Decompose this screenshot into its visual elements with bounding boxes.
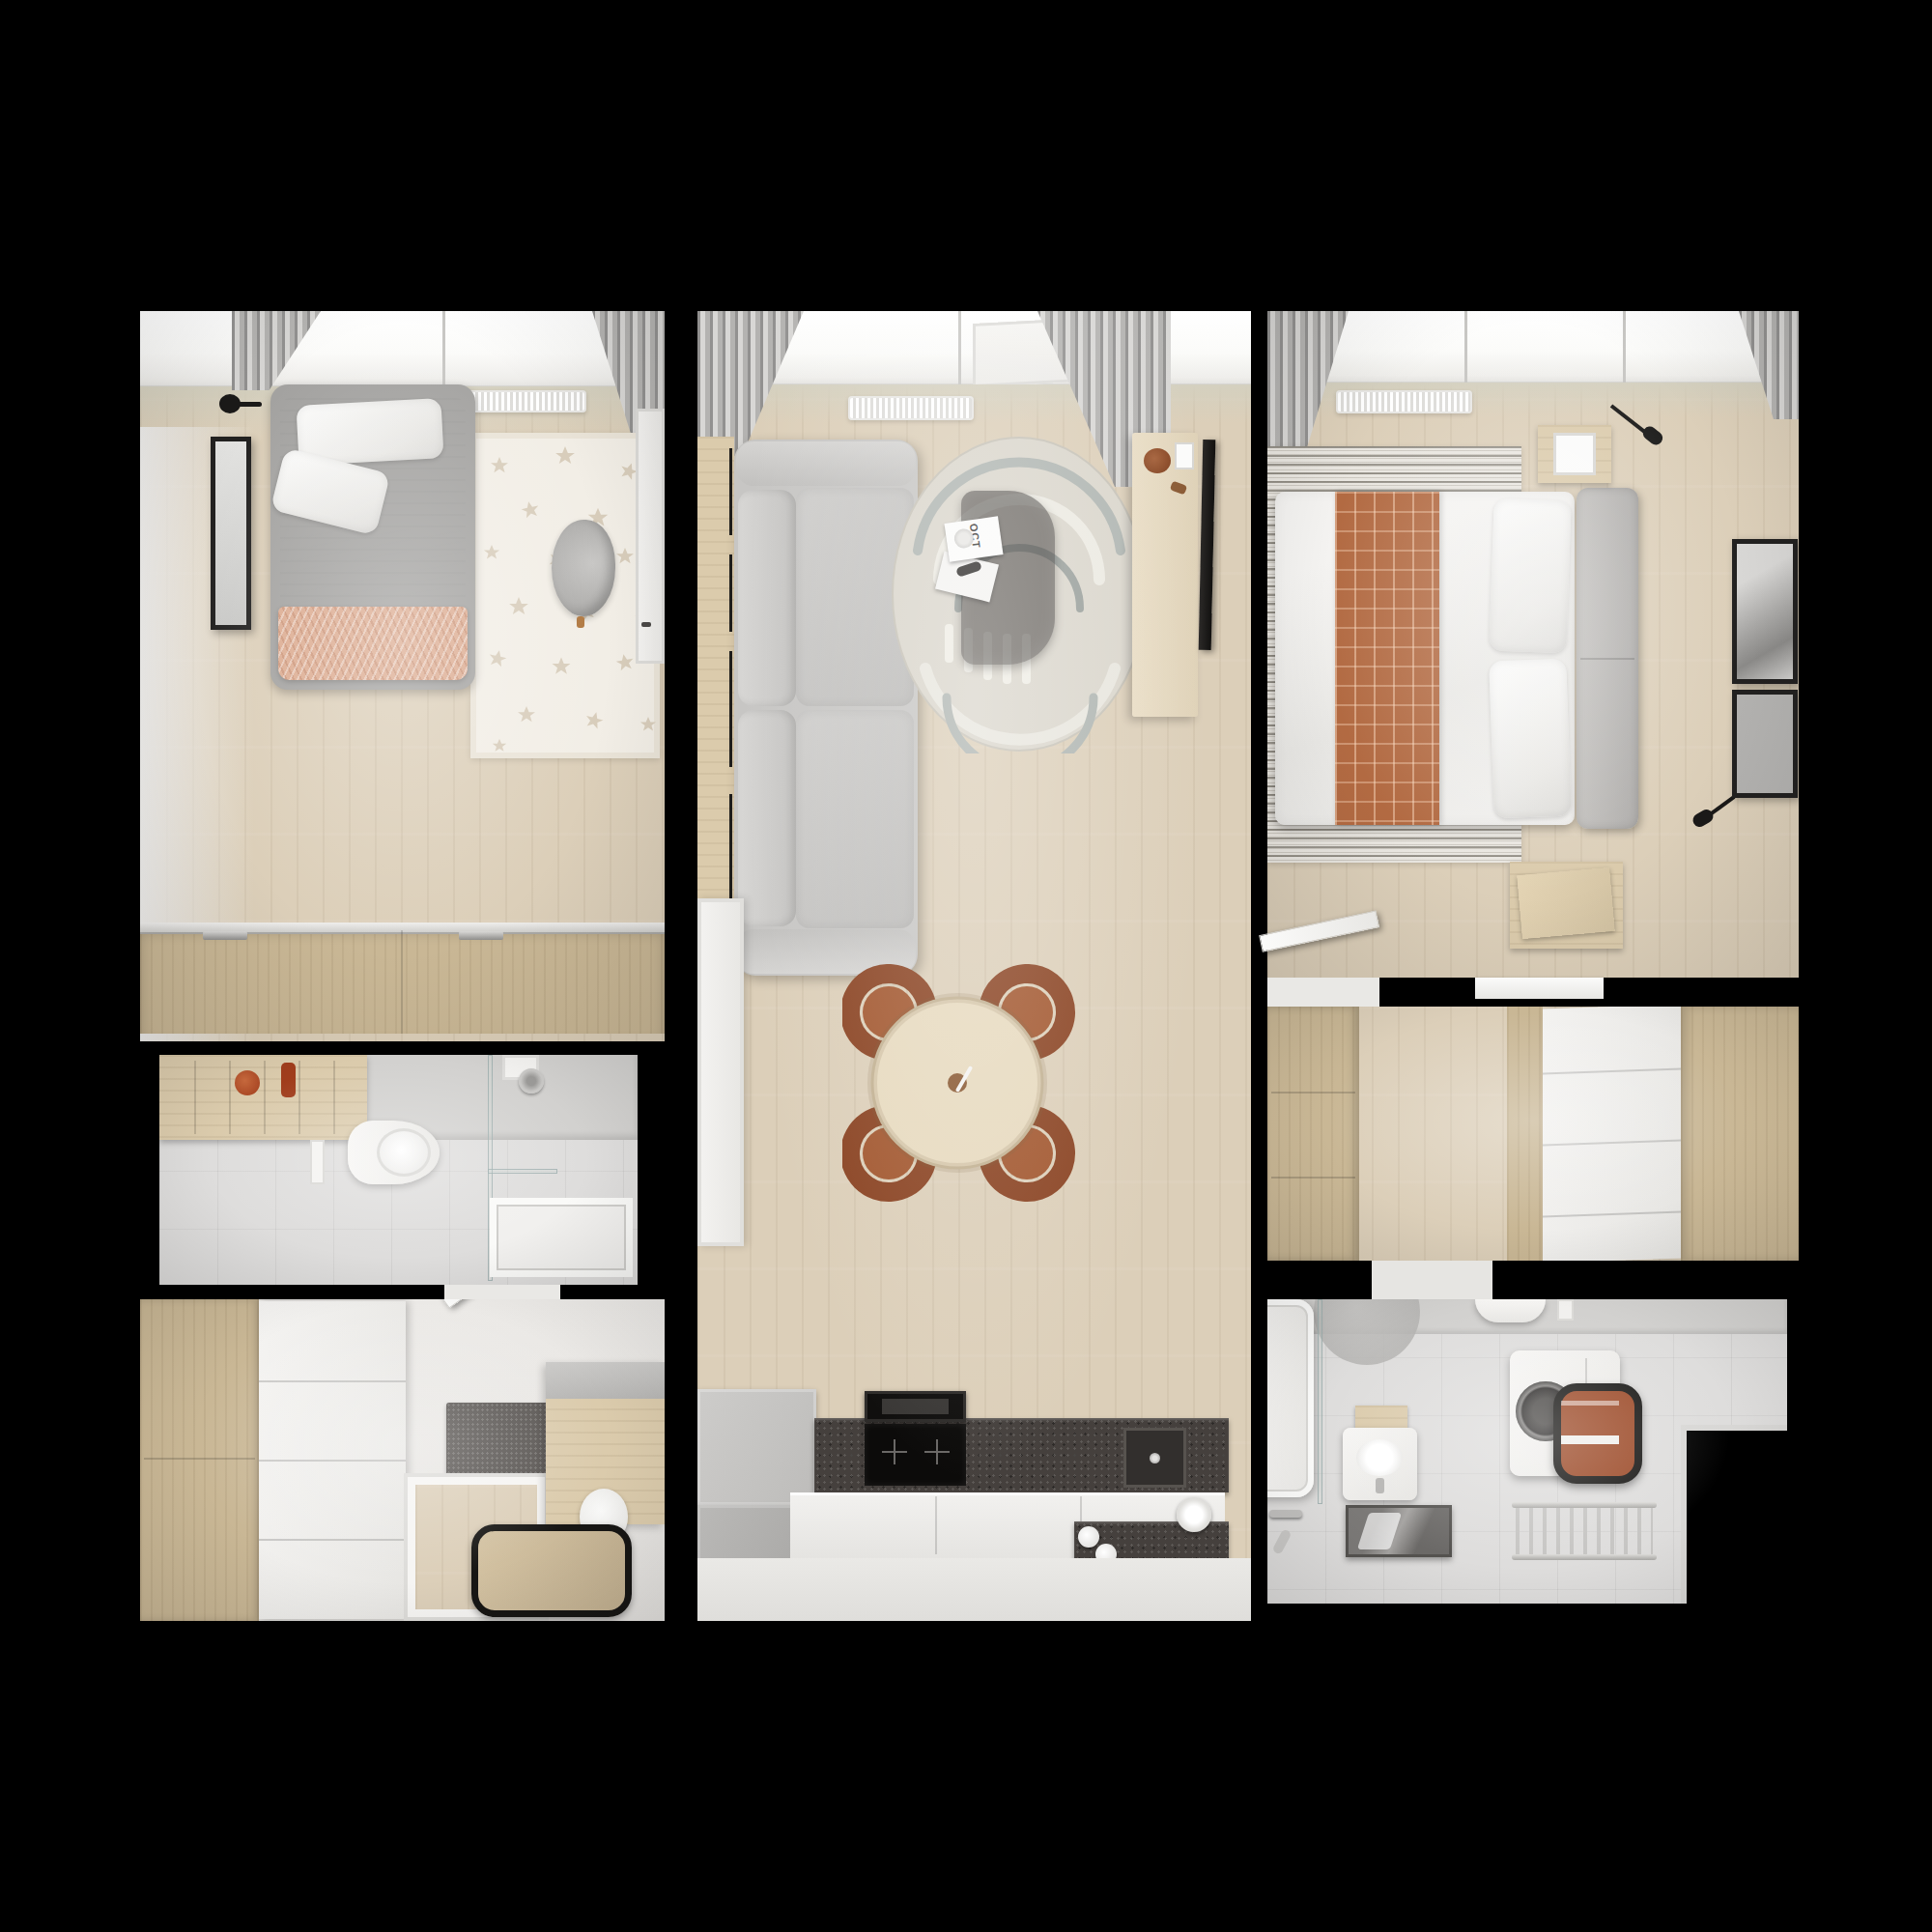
hob-cross-1v bbox=[894, 1439, 895, 1464]
shelf-divider bbox=[333, 1061, 335, 1134]
master-radiator bbox=[1336, 390, 1472, 413]
front-seam bbox=[935, 1496, 937, 1554]
kids-armchair bbox=[552, 520, 615, 616]
room-living-kitchen: OCT bbox=[697, 311, 1251, 1621]
drawer-seam bbox=[259, 1380, 406, 1382]
towel-radiator bbox=[1512, 1502, 1657, 1560]
bath2-glass-screen bbox=[1318, 1299, 1322, 1504]
drawer-seam bbox=[1543, 1068, 1681, 1075]
entry-door-open bbox=[440, 1299, 553, 1309]
master-window-mullion-1 bbox=[1464, 311, 1467, 383]
tv-sideboard bbox=[1132, 433, 1198, 717]
hall-closet-drawers bbox=[1543, 1007, 1681, 1261]
hall-pass-ledge bbox=[1475, 978, 1604, 999]
headboard-seam bbox=[1580, 658, 1634, 660]
master-plaid-blanket bbox=[1335, 492, 1439, 825]
wardrobe-seam bbox=[1271, 1092, 1355, 1094]
kids-armchair-leg bbox=[577, 616, 584, 628]
bath2-wall-circle bbox=[1314, 1299, 1420, 1365]
radiator-rungs bbox=[1516, 1508, 1653, 1554]
wall-tv bbox=[1199, 440, 1216, 650]
living-west-door-panel bbox=[697, 898, 744, 1246]
drawer-seam bbox=[259, 1539, 406, 1541]
art-frame-1 bbox=[1732, 539, 1798, 684]
doorway-bath1 bbox=[444, 1285, 560, 1299]
bathtub bbox=[1267, 1299, 1314, 1497]
sink-faucet bbox=[1150, 1453, 1160, 1463]
hob-cross-2v bbox=[936, 1439, 938, 1464]
sofa-back-cushion-1 bbox=[738, 490, 796, 706]
room-master-bedroom bbox=[1267, 311, 1799, 978]
drawer-seam bbox=[1543, 1211, 1681, 1218]
kids-window bbox=[140, 311, 665, 388]
vanity-mirror bbox=[1346, 1505, 1452, 1557]
bath2-small-shelf bbox=[1557, 1299, 1574, 1321]
kids-window-mullion bbox=[442, 311, 445, 386]
room-entry-dressing bbox=[140, 1299, 665, 1621]
nightstand-bottom bbox=[1510, 862, 1623, 949]
wardrobe-seam bbox=[144, 1458, 255, 1460]
room-small-bathroom bbox=[159, 1055, 638, 1285]
master-double-bed bbox=[1275, 488, 1638, 829]
room-main-bathroom bbox=[1267, 1299, 1787, 1604]
kids-peach-blanket bbox=[278, 607, 468, 680]
basin-bowl bbox=[1356, 1439, 1403, 1476]
cabinet-top bbox=[546, 1362, 665, 1399]
kitchen-floor-strip bbox=[697, 1558, 1251, 1621]
drawer-seam bbox=[259, 1460, 406, 1462]
wardrobe-handle-2 bbox=[459, 931, 503, 940]
hall-wardrobe-west bbox=[1267, 1007, 1359, 1261]
living-radiator bbox=[848, 396, 974, 420]
living-window-mullion bbox=[958, 311, 961, 384]
bath1-shower-glass-return bbox=[488, 1169, 557, 1174]
wardrobe-seam bbox=[1271, 1177, 1355, 1179]
master-pillow-1 bbox=[1489, 498, 1571, 654]
bath2-wall-notch bbox=[1681, 1425, 1787, 1604]
magazine-1: OCT bbox=[944, 516, 1003, 561]
dining-set bbox=[842, 964, 1132, 1254]
hood-vent bbox=[882, 1399, 949, 1414]
art-frame-2 bbox=[1732, 690, 1798, 798]
kitchen-west-counter-1 bbox=[697, 1389, 816, 1505]
drawer-seam bbox=[1543, 1140, 1681, 1147]
hall-closet-frame-right bbox=[1681, 1007, 1799, 1261]
kids-door-handle bbox=[641, 622, 651, 627]
room-hallway bbox=[1267, 1007, 1799, 1261]
wardrobe-handle-1 bbox=[203, 931, 247, 940]
shelf-divider bbox=[194, 1061, 196, 1134]
basket-strap2 bbox=[1561, 1401, 1619, 1406]
shelf-decor-bowl bbox=[235, 1070, 260, 1095]
master-pillow-2 bbox=[1489, 659, 1572, 819]
entry-wardrobe-side bbox=[140, 1299, 259, 1621]
hall-closet-frame-left bbox=[1507, 1007, 1543, 1261]
bath1-shelf-unit bbox=[159, 1055, 367, 1140]
doorway-bath2 bbox=[1372, 1261, 1492, 1299]
shelf-divider bbox=[298, 1061, 300, 1134]
sideboard-card bbox=[1175, 442, 1194, 469]
bath1-shower-tray bbox=[490, 1198, 633, 1277]
cooker-hood bbox=[865, 1391, 966, 1422]
nightstand-top bbox=[1538, 425, 1611, 483]
kids-wardrobe bbox=[140, 923, 665, 1034]
toilet-seat bbox=[377, 1128, 431, 1177]
basin-faucet bbox=[1376, 1478, 1384, 1493]
doorway-master bbox=[1267, 978, 1379, 1007]
room-kids-bedroom bbox=[140, 311, 665, 1041]
bath1-flush-plate bbox=[310, 1140, 325, 1184]
kitchen-canister-1 bbox=[1078, 1526, 1099, 1548]
shelf-divider bbox=[229, 1061, 231, 1134]
shelf-divider bbox=[264, 1061, 266, 1134]
tub-faucet bbox=[1269, 1510, 1302, 1518]
wardrobe-seam bbox=[401, 930, 403, 1034]
kids-wall-mirror bbox=[211, 437, 251, 630]
kitchen-plate-stack bbox=[1177, 1497, 1211, 1532]
nightstand-frame-decor bbox=[1553, 433, 1596, 475]
tub-handheld-shower bbox=[1271, 1528, 1292, 1555]
lamp-top-head bbox=[1640, 424, 1665, 448]
shelf-decor-bottle bbox=[281, 1063, 296, 1097]
kids-wall-lamp bbox=[219, 394, 241, 413]
sofa-back-cushion-2 bbox=[738, 710, 796, 926]
sideboard-bowl bbox=[1144, 448, 1171, 473]
vanity-shelf bbox=[1355, 1406, 1407, 1428]
floor-plan-canvas: OCT bbox=[0, 0, 1932, 1932]
sideboard-item bbox=[1170, 481, 1187, 496]
entry-leaning-mirror bbox=[471, 1524, 632, 1617]
laundry-basket bbox=[1553, 1383, 1642, 1484]
bath1-shower-head bbox=[519, 1068, 544, 1094]
master-window bbox=[1267, 311, 1799, 384]
radiator-rail-bottom bbox=[1512, 1554, 1657, 1560]
master-window-mullion-2 bbox=[1623, 311, 1626, 383]
entry-drawers bbox=[259, 1301, 406, 1619]
panel-rail bbox=[729, 651, 732, 767]
mirror-reflection bbox=[1357, 1513, 1402, 1549]
nightstand-open-drawer bbox=[1517, 867, 1614, 939]
basket-strap bbox=[1561, 1435, 1619, 1444]
kitchen-sink bbox=[1123, 1428, 1186, 1488]
master-headboard bbox=[1577, 488, 1638, 829]
induction-hob bbox=[865, 1424, 966, 1486]
panel-rail bbox=[729, 554, 732, 632]
vanity-basin bbox=[1343, 1428, 1417, 1500]
bath1-toilet bbox=[348, 1121, 440, 1184]
panel-rail bbox=[729, 448, 732, 535]
kids-single-bed bbox=[270, 384, 475, 690]
